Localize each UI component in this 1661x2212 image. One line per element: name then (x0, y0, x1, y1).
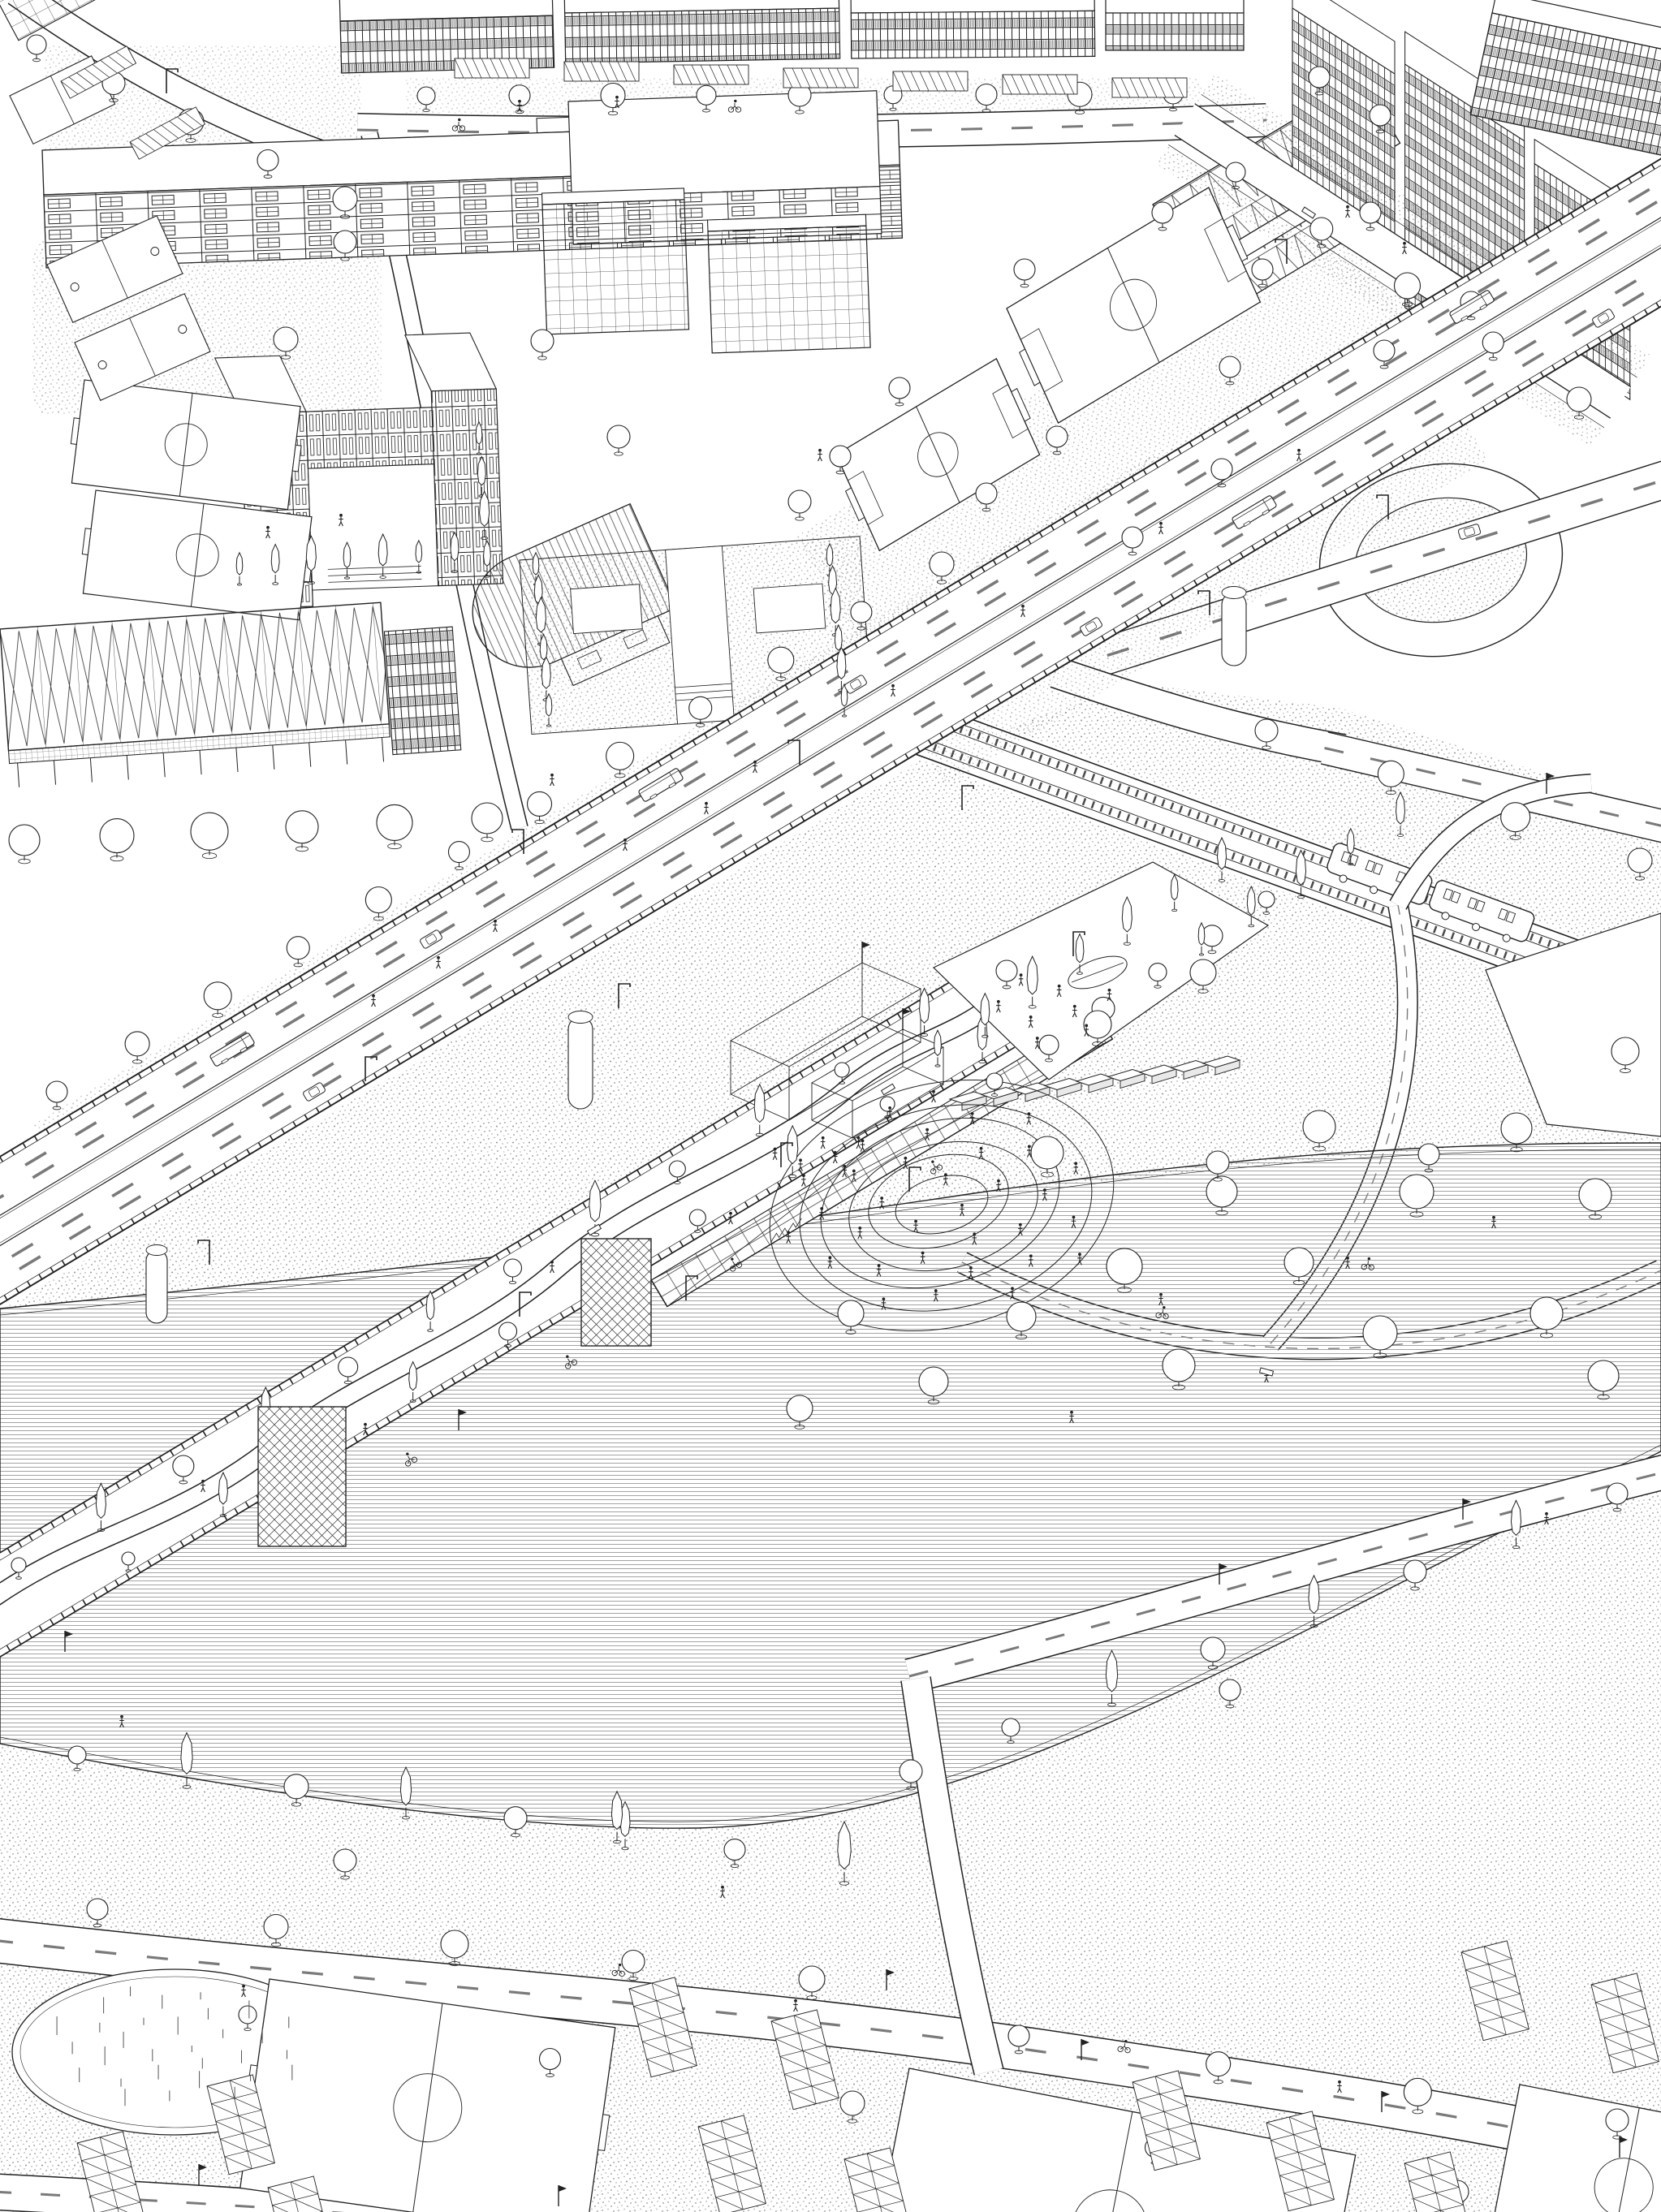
tree-canopy (1008, 2025, 1029, 2046)
person-head (960, 1204, 964, 1207)
person-head (888, 1106, 891, 1110)
tree-canopy (669, 1161, 685, 1177)
tree-canopy (448, 842, 469, 863)
tree-canopy (27, 35, 46, 54)
person-head (980, 1147, 983, 1150)
person-head (891, 684, 895, 688)
housing-slab (564, 0, 840, 63)
slab-facade (1106, 13, 1244, 50)
tree-canopy (1152, 202, 1173, 223)
tree-canopy (125, 1032, 149, 1056)
tree-canopy (1482, 332, 1504, 353)
tree-canopy (1206, 2052, 1231, 2076)
tree-canopy (900, 1760, 922, 1783)
pier-lattice (258, 1407, 346, 1546)
lattice-bridge-pier (581, 1239, 651, 1346)
person-head (518, 100, 521, 103)
tree-canopy (1606, 2109, 1629, 2132)
tree-canopy (889, 377, 910, 399)
person-head (969, 1266, 973, 1270)
person-head (1029, 1015, 1033, 1019)
tree-canopy (287, 937, 309, 959)
person-head (820, 1207, 823, 1210)
person-head (774, 1148, 777, 1151)
tree-canopy (835, 1063, 849, 1077)
tree-canopy (1628, 848, 1652, 873)
tree-canopy (840, 2091, 865, 2115)
housing-slab (851, 0, 1095, 58)
round-column-pier (1222, 587, 1246, 666)
tree-canopy (880, 1097, 895, 1111)
tree-canopy (191, 813, 228, 850)
bike-rack-row (455, 58, 529, 78)
glass-block (542, 188, 689, 334)
person-head (1070, 1411, 1073, 1414)
tree-canopy (1418, 1144, 1439, 1165)
bike-rack-row (1003, 75, 1077, 94)
person-head (828, 1257, 831, 1260)
tree-canopy (531, 330, 554, 352)
tree-canopy (697, 85, 716, 105)
slab-facade (851, 11, 1094, 58)
column-top (1222, 587, 1246, 599)
person-head (944, 1173, 947, 1176)
tree-canopy (601, 84, 625, 108)
back-wing (306, 407, 434, 468)
tree-canopy (1190, 959, 1216, 985)
person-head (934, 1289, 938, 1292)
person-head (1297, 449, 1301, 452)
tree-canopy (1007, 1302, 1036, 1331)
tree-canopy (1363, 1316, 1397, 1350)
tree-canopy (9, 825, 40, 856)
person-head (372, 994, 375, 998)
column-top (146, 1245, 167, 1256)
person-head (623, 839, 627, 842)
person-head (882, 1297, 886, 1300)
person-head (721, 1886, 724, 1889)
tree-canopy (1360, 202, 1381, 223)
drawing-canvas (0, 0, 1661, 2212)
planter-bed (571, 584, 643, 634)
tree-canopy (1404, 2078, 1431, 2106)
tree-canopy (377, 804, 412, 840)
person-head (753, 761, 757, 764)
person-head (1346, 205, 1349, 209)
person-head (615, 96, 619, 99)
tree-canopy (528, 791, 552, 816)
round-column-pier (146, 1245, 167, 1324)
person-head (1020, 973, 1023, 977)
tree-canopy (919, 1367, 948, 1396)
person-head (1159, 522, 1163, 525)
tree-canopy (204, 982, 231, 1010)
person-head (550, 1261, 554, 1264)
tree-canopy (1226, 162, 1245, 182)
person-head (1027, 1112, 1030, 1115)
tree-canopy (799, 1966, 825, 1992)
tree-canopy (1378, 761, 1404, 787)
site-axonometric-drawing (0, 0, 1661, 2212)
tree-canopy (996, 960, 1017, 981)
tree-canopy (122, 1552, 135, 1565)
tree-canopy (607, 425, 630, 448)
person-head (834, 1151, 837, 1154)
tree-canopy (239, 2006, 257, 2024)
tree-canopy (768, 647, 794, 673)
tree-canopy (1404, 1560, 1426, 1583)
tree-canopy (365, 887, 391, 913)
person-head (201, 1480, 205, 1483)
rider-head (734, 100, 736, 102)
tree-canopy (87, 1899, 108, 1920)
person-head (1072, 1216, 1076, 1219)
tree-canopy (1122, 527, 1143, 548)
person-head (858, 1227, 861, 1230)
tree-canopy (1201, 1637, 1225, 1662)
tree-canopy (1149, 964, 1167, 981)
person-head (1492, 1216, 1495, 1219)
tree-canopy (1219, 356, 1240, 377)
person-head (861, 1140, 865, 1143)
tree-canopy (1107, 1248, 1142, 1284)
column-top (568, 1011, 593, 1024)
tree-canopy (689, 696, 712, 719)
tree-canopy (1211, 459, 1232, 480)
person-head (1074, 1162, 1077, 1165)
lattice-bridge-pier (258, 1407, 346, 1546)
tree-canopy (606, 742, 634, 770)
person-head (971, 1112, 974, 1115)
tree-canopy (788, 490, 811, 513)
tree-canopy (1395, 273, 1421, 299)
tree-canopy (930, 552, 954, 576)
pier-lattice (581, 1239, 651, 1346)
tree-canopy (1370, 105, 1391, 126)
tree-canopy (689, 1209, 705, 1226)
curtain-wall (708, 226, 870, 353)
person-head (1019, 1223, 1022, 1227)
person-head (1073, 1005, 1076, 1008)
person-head (1403, 242, 1406, 245)
tree-canopy (1046, 426, 1068, 447)
person-head (1036, 1037, 1039, 1040)
person-head (973, 1232, 976, 1235)
tree-canopy (1163, 1349, 1195, 1382)
person-head (857, 1136, 861, 1140)
column-shaft (568, 1017, 593, 1109)
person-head (266, 526, 270, 529)
person-head (364, 1423, 367, 1426)
tree-canopy (1310, 218, 1333, 240)
round-column-pier (568, 1011, 593, 1110)
column-shaft (146, 1250, 167, 1323)
glass-block (708, 214, 871, 353)
tree-canopy (1607, 1483, 1628, 1504)
person-head (802, 1174, 805, 1177)
slab-roof (1106, 0, 1244, 13)
person-head (904, 1157, 907, 1160)
tree-canopy (787, 1395, 813, 1421)
tree-canopy (1303, 1110, 1335, 1143)
planter-bed (753, 584, 826, 633)
housing-slab (1106, 0, 1244, 50)
tree-canopy (1309, 67, 1330, 88)
person-head (925, 1128, 929, 1132)
tree-canopy (334, 1849, 356, 1872)
person-head (1021, 605, 1025, 608)
tree-canopy (1255, 719, 1278, 742)
tree-canopy (976, 84, 997, 106)
person-head (550, 774, 554, 777)
tree-canopy (976, 483, 997, 504)
bike-rack-row (893, 71, 968, 91)
tree-canopy (1501, 803, 1530, 832)
person-head (921, 1252, 925, 1255)
tree-canopy (1258, 891, 1275, 908)
tree-canopy (100, 819, 134, 853)
tree-canopy (1579, 1179, 1611, 1211)
tree-canopy (46, 1081, 67, 1102)
person-head (799, 1158, 802, 1162)
bike-rack-row (783, 68, 858, 88)
bike-rack-row (1112, 78, 1187, 97)
tree-canopy (1002, 1718, 1020, 1736)
person-head (1028, 1145, 1031, 1148)
person-head (914, 1220, 917, 1223)
tree-canopy (1039, 1035, 1059, 1054)
person-head (705, 802, 708, 805)
rider-head (458, 119, 460, 121)
person-head (818, 449, 822, 452)
tree-canopy (257, 150, 278, 171)
bike-rack-row (564, 62, 639, 81)
person-head (1085, 1024, 1088, 1028)
tree-canopy (284, 1774, 308, 1799)
tree-canopy (417, 87, 435, 105)
person-head (843, 1165, 846, 1168)
person-head (880, 1197, 883, 1200)
tree-canopy (830, 446, 851, 467)
tree-canopy (1530, 1297, 1563, 1330)
person-head (1029, 1254, 1033, 1257)
person-head (1058, 985, 1061, 988)
tree-canopy (1206, 1151, 1229, 1174)
tree-canopy (504, 1807, 527, 1830)
person-head (794, 1999, 797, 2003)
person-head (242, 1985, 245, 1988)
tree-canopy (472, 803, 503, 834)
tree-canopy (334, 231, 356, 253)
person-head (1011, 1287, 1014, 1290)
column-shaft (1222, 593, 1246, 666)
curtain-wall (542, 200, 688, 334)
tree-canopy (68, 1746, 86, 1764)
tree-canopy (1611, 1037, 1639, 1065)
person-head (1043, 1188, 1046, 1192)
tree-canopy (339, 1357, 358, 1377)
person-head (729, 1212, 732, 1215)
side-block (384, 627, 460, 754)
tree-canopy (986, 1073, 1003, 1089)
tree-canopy (1219, 1679, 1240, 1701)
person-head (339, 514, 343, 517)
person-head (494, 920, 497, 923)
tree-canopy (851, 602, 872, 623)
person-head (1159, 1293, 1163, 1296)
tree-canopy (509, 85, 530, 106)
person-head (932, 1090, 935, 1093)
tree-canopy (1284, 1248, 1314, 1277)
person-head (1338, 2080, 1341, 2084)
person-head (852, 1170, 856, 1173)
wing-facade (431, 389, 503, 586)
tree-canopy (1501, 1113, 1532, 1144)
person-head (997, 1179, 1000, 1183)
tree-canopy (333, 187, 357, 211)
bike-rack-row (674, 65, 749, 84)
tree-canopy (724, 1839, 745, 1861)
tree-canopy (1588, 1360, 1619, 1391)
person-head (1078, 1253, 1081, 1256)
person-head (1346, 1257, 1349, 1260)
person-head (1108, 989, 1111, 992)
person-head (878, 1264, 881, 1267)
tree-canopy (838, 1300, 864, 1326)
tree-canopy (499, 1322, 517, 1340)
person-head (997, 1000, 1000, 1003)
person-head (120, 1715, 123, 1718)
tree-canopy (441, 1930, 468, 1958)
tree-canopy (11, 1558, 26, 1572)
person-head (1545, 1512, 1548, 1516)
tree-canopy (264, 1915, 288, 1939)
tree-canopy (540, 2049, 561, 2070)
person-head (787, 1231, 790, 1234)
tree-canopy (622, 1951, 645, 1973)
person-head (437, 956, 440, 959)
tree-canopy (1567, 387, 1591, 412)
tree-canopy (1252, 259, 1273, 280)
tree-canopy (504, 1259, 522, 1277)
tree-canopy (274, 327, 298, 351)
tree-canopy (1014, 259, 1035, 280)
tree-canopy (1031, 1136, 1063, 1169)
slab-facade (565, 8, 840, 63)
tree-canopy (1400, 1175, 1434, 1209)
tree-canopy (1374, 340, 1395, 361)
tree-canopy (1206, 1176, 1237, 1207)
tree-canopy (1084, 1011, 1111, 1038)
person-head (822, 1136, 825, 1140)
tree-canopy (173, 1455, 194, 1477)
tree-canopy (286, 811, 318, 843)
